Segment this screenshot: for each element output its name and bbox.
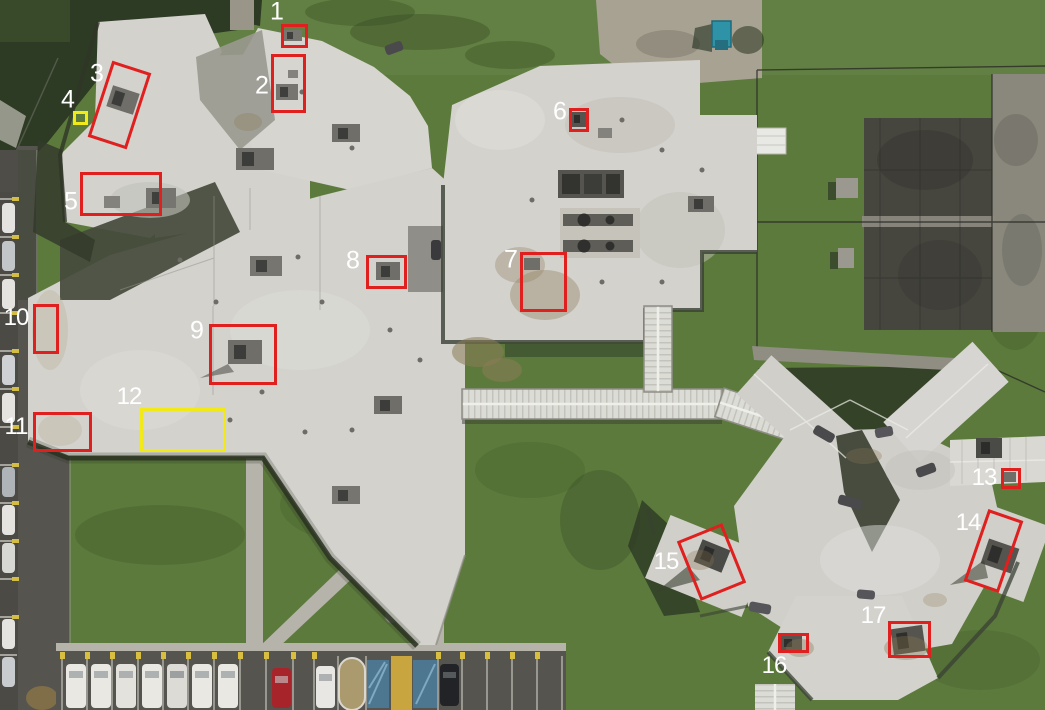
annotation-box-5[interactable] [80,172,162,216]
annotation-label-13: 13 [972,466,997,490]
annotation-label-15: 15 [654,550,679,574]
annotation-label-10: 10 [4,306,29,330]
annotation-box-15[interactable] [676,523,745,601]
annotation-label-6: 6 [553,100,567,125]
annotation-label-3: 3 [90,62,104,87]
annotation-label-12: 12 [117,385,142,409]
annotation-box-13[interactable] [1001,468,1021,489]
annotation-box-11[interactable] [33,412,92,452]
annotation-box-7[interactable] [520,252,567,312]
annotation-label-11: 11 [5,415,28,439]
annotation-box-9[interactable] [209,324,277,385]
annotation-label-17: 17 [861,604,886,628]
annotation-box-1[interactable] [281,24,308,48]
annotation-label-2: 2 [255,74,269,99]
annotation-label-7: 7 [504,248,518,273]
annotation-box-6[interactable] [569,108,589,132]
annotation-label-4: 4 [61,88,75,113]
annotation-label-9: 9 [190,319,204,344]
annotation-label-8: 8 [346,249,360,274]
annotation-box-2[interactable] [271,54,306,113]
aerial-photo: 1234567891011121314151617 [0,0,1045,710]
annotation-box-17[interactable] [888,621,931,658]
annotation-overlay: 1234567891011121314151617 [0,0,1045,710]
annotation-box-10[interactable] [33,304,59,354]
annotation-label-5: 5 [64,190,78,215]
annotation-label-16: 16 [762,654,787,678]
annotation-box-8[interactable] [366,255,407,289]
annotation-box-16[interactable] [778,633,809,653]
annotation-label-14: 14 [956,511,981,535]
annotation-box-12[interactable] [140,408,226,452]
annotation-label-1: 1 [270,0,284,25]
